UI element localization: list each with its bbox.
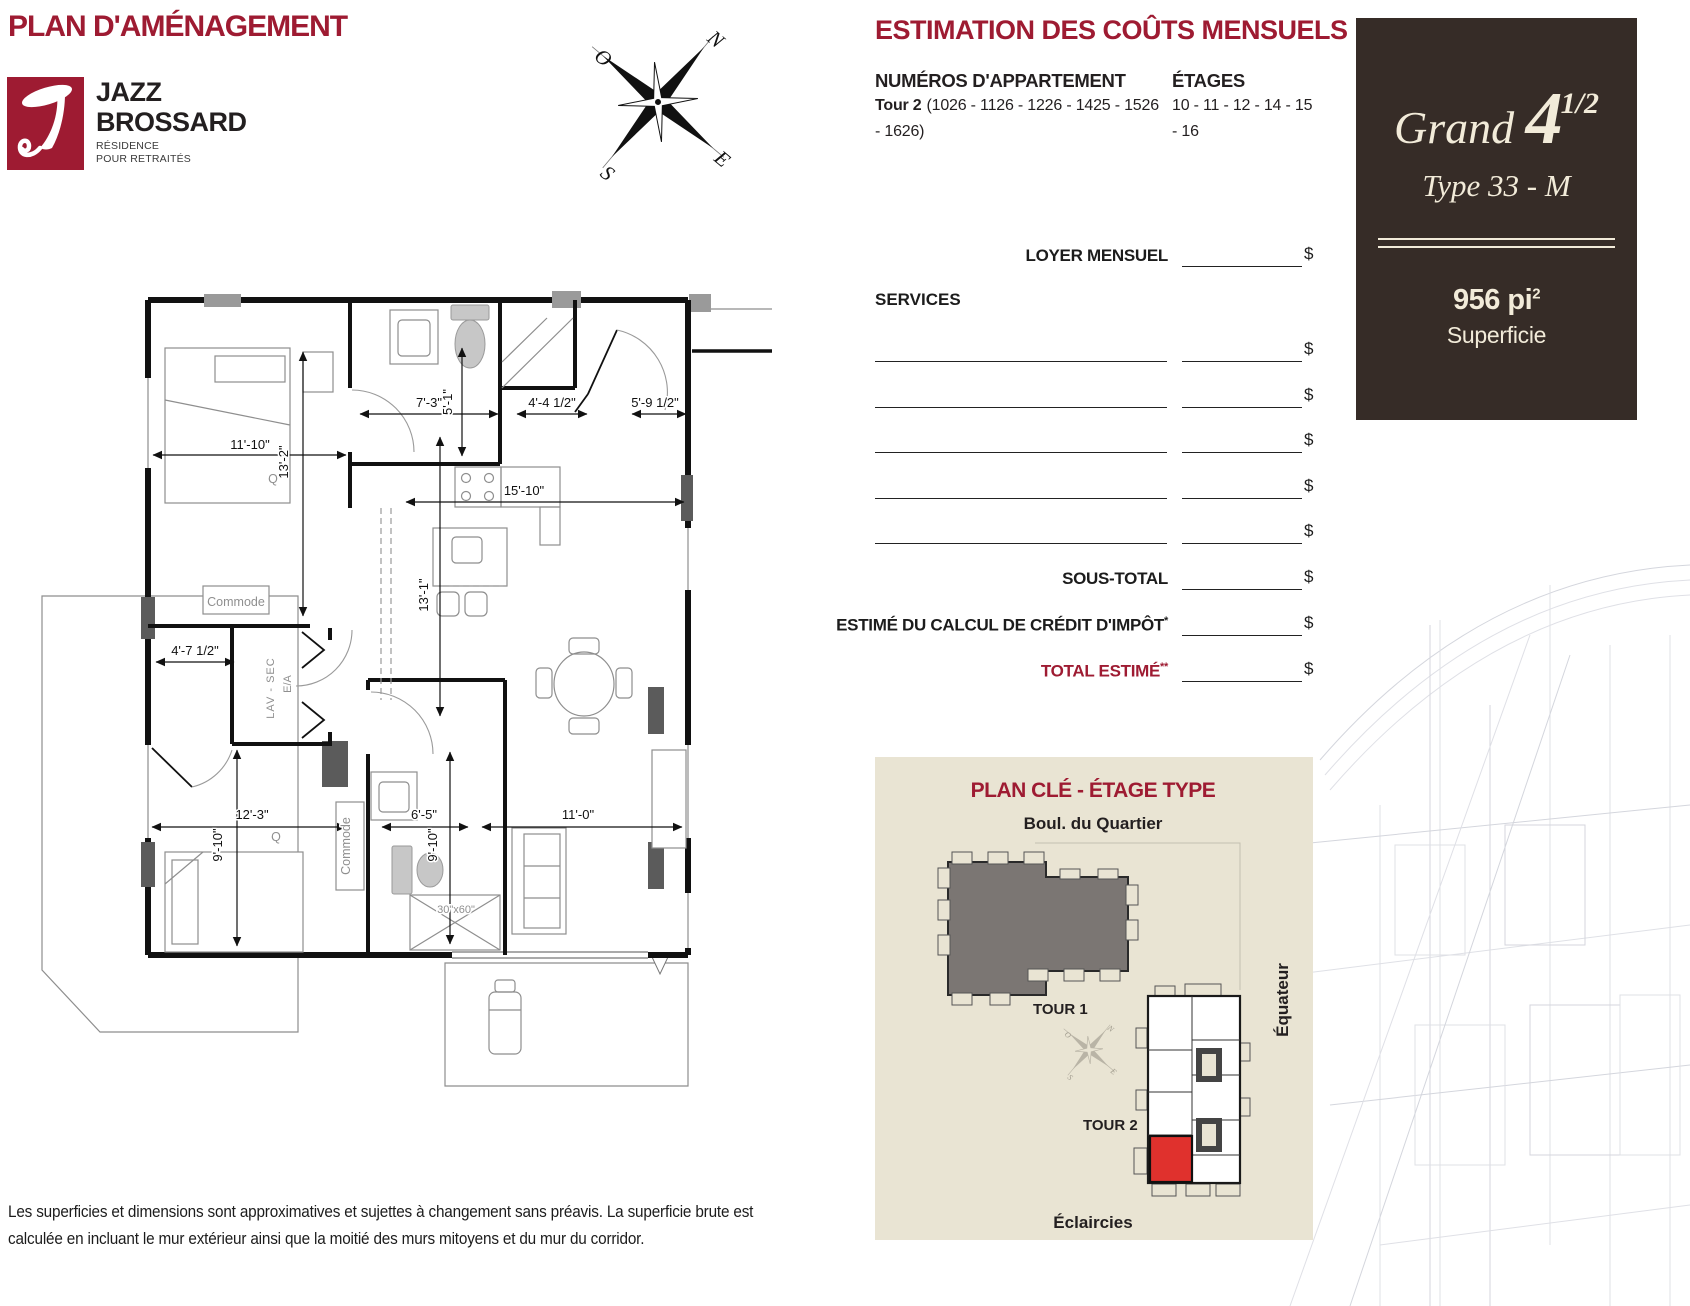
unit-area-exponent: 2: [1532, 285, 1540, 302]
total-currency: $: [1304, 659, 1313, 679]
total-label: TOTAL ESTIMÉ**: [800, 661, 1168, 682]
compass-rose-icon: N O S E: [575, 10, 750, 190]
service-amount-line-1: [1182, 361, 1302, 362]
tax-credit-currency: $: [1304, 613, 1313, 633]
dim-hall-width: 4'-4 1/2": [528, 395, 576, 410]
duct-dashes: [381, 508, 391, 700]
logo-subtitle-line1: RÉSIDENCE: [96, 141, 159, 152]
rent-currency: $: [1304, 244, 1313, 264]
service-amount-line-5: [1182, 543, 1302, 544]
disclaimer-line1: Les superficies et dimensions sont appro…: [8, 1198, 782, 1225]
jazz-logo-icon: [7, 77, 84, 170]
dim-bedroom2-depth: 9'-10": [210, 828, 225, 862]
tower1-label: TOUR 1: [1033, 1001, 1088, 1018]
tax-credit-blank-line: [1182, 635, 1302, 636]
unit-type: Type 33 - M: [1356, 168, 1637, 204]
service-name-line-4: [875, 498, 1167, 499]
street-right-label: Équateur: [1273, 963, 1292, 1037]
dim-bedroom1-depth: 13'-2": [276, 445, 291, 479]
service-currency-1: $: [1304, 339, 1313, 359]
floors-line1: 10 - 11 - 12 - 14 - 15: [1172, 97, 1312, 115]
subtotal-label: SOUS-TOTAL: [800, 569, 1168, 589]
logo-name-line2: BROSSARD: [96, 109, 247, 136]
floors-label: ÉTAGES: [1172, 70, 1245, 92]
total-asterisk: **: [1160, 661, 1168, 673]
floor-plan-drawing: 7'-3" 5'-1" 4'-4 1/2" 5'-9 1/2" 11'-10" …: [20, 285, 790, 1100]
unit-area: 956 pi2: [1356, 284, 1637, 317]
service-name-line-3: [875, 452, 1167, 453]
living-furniture: [512, 750, 686, 934]
estimation-title: ESTIMATION DES COÛTS MENSUELS: [875, 15, 1348, 46]
disclaimer-line2: calculée en incluant le mur extérieur ai…: [8, 1225, 782, 1252]
unit-fraction: 1/2: [1561, 89, 1599, 119]
dim-kitchen-depth: 13'-1": [416, 578, 431, 612]
pantry-shelves: [502, 318, 573, 388]
unit-area-label: Superficie: [1356, 322, 1637, 349]
rent-label: LOYER MENSUEL: [800, 246, 1168, 266]
unit-name: Grand 41/2: [1356, 82, 1637, 156]
card-divider: [1378, 238, 1615, 248]
dresser2-label: Commode: [339, 817, 353, 875]
tower1-building: [938, 852, 1138, 1005]
balcony-outline: [445, 963, 688, 1086]
dim-kitchen-width: 15'-10": [504, 483, 545, 498]
bed2-size-label: Q: [271, 830, 281, 844]
total-blank-line: [1182, 681, 1302, 682]
apartments-tower: Tour 2: [875, 97, 922, 114]
laundry-label: LAV - SEC: [265, 657, 277, 718]
logo-name-line1: JAZZ: [96, 79, 162, 106]
rent-blank-line: [1182, 266, 1302, 267]
subtotal-currency: $: [1304, 567, 1313, 587]
dim-entry-width: 5'-9 1/2": [631, 395, 679, 410]
water-heater-label: E/A: [282, 674, 294, 692]
dim-bedroom2-width: 12'-3": [235, 807, 269, 822]
key-plan-title: PLAN CLÉ - ÉTAGE TYPE: [971, 779, 1216, 802]
subtotal-blank-line: [1182, 589, 1302, 590]
service-currency-5: $: [1304, 521, 1313, 541]
bedroom2-furniture: [165, 802, 364, 952]
service-amount-line-3: [1182, 452, 1302, 453]
street-top-label: Boul. du Quartier: [1024, 814, 1163, 833]
dim-bath1-width: 7'-3": [416, 395, 442, 410]
unit-number: 4: [1526, 78, 1560, 160]
unit-card: Grand 41/2 Type 33 - M 956 pi2 Superfici…: [1356, 18, 1637, 420]
dresser1-label: Commode: [207, 595, 265, 609]
disclaimer-text: Les superficies et dimensions sont appro…: [8, 1198, 782, 1252]
balcony-chair: [489, 992, 521, 1054]
apartments-label: NUMÉROS D'APPARTEMENT: [875, 70, 1126, 92]
dim-closet-width: 4'-7 1/2": [171, 643, 219, 658]
tub-size-label: 30"x60": [437, 904, 475, 916]
tax-credit-label: ESTIMÉ DU CALCUL DE CRÉDIT D'IMPÔT*: [800, 615, 1168, 636]
page-title: PLAN D'AMÉNAGEMENT: [8, 10, 347, 44]
apartments-line2: - 1626): [875, 123, 924, 141]
compass-east-label: E: [709, 145, 735, 172]
key-plan-drawing: PLAN CLÉ - ÉTAGE TYPE Boul. du Quartier: [875, 757, 1313, 1240]
logo-subtitle-line2: POUR RETRAITÉS: [96, 154, 191, 165]
service-name-line-5: [875, 543, 1167, 544]
bed1-size-label: Q: [268, 472, 278, 486]
tower2-label: TOUR 2: [1083, 1117, 1138, 1134]
highlighted-unit: [1150, 1136, 1192, 1182]
apartments-numbers: (1026 - 1126 - 1226 - 1425 - 1526: [927, 97, 1159, 114]
compass-south-label: S: [596, 160, 620, 185]
mini-compass-south: S: [1066, 1073, 1075, 1082]
street-bottom-label: Éclaircies: [1053, 1213, 1132, 1232]
service-amount-line-2: [1182, 407, 1302, 408]
service-currency-2: $: [1304, 385, 1313, 405]
brochure-page: PLAN D'AMÉNAGEMENT JAZZ BROSSARD RÉSIDEN…: [0, 0, 1690, 1306]
dining-furniture: [536, 638, 632, 734]
mini-compass-east: E: [1108, 1066, 1118, 1077]
bedroom1-furniture: [165, 348, 333, 614]
tower2-building: [1134, 984, 1250, 1196]
service-name-line-1: [875, 361, 1167, 362]
floors-line2: - 16: [1172, 123, 1199, 141]
dim-living-width: 11'-0": [562, 807, 595, 822]
apartments-line1: Tour 2(1026 - 1126 - 1226 - 1425 - 1526: [875, 97, 1159, 115]
service-currency-3: $: [1304, 430, 1313, 450]
compass-north-label: N: [702, 25, 730, 54]
service-amount-line-4: [1182, 498, 1302, 499]
bathroom1-fixtures: [390, 305, 489, 368]
service-name-line-2: [875, 407, 1167, 408]
services-label: SERVICES: [875, 290, 961, 310]
dim-bedroom1-width: 11'-10": [230, 437, 270, 452]
service-currency-4: $: [1304, 476, 1313, 496]
key-plan-panel: PLAN CLÉ - ÉTAGE TYPE Boul. du Quartier: [875, 757, 1313, 1240]
dim-bath2-width: 6'-5": [411, 807, 437, 822]
mini-compass-north: N: [1105, 1023, 1116, 1034]
door-swing-marker: [652, 957, 668, 974]
dim-bath2-depth: 9'-10": [425, 828, 440, 862]
tax-credit-asterisk: *: [1164, 615, 1168, 627]
dim-bath1-depth: 5'-1": [440, 389, 455, 415]
